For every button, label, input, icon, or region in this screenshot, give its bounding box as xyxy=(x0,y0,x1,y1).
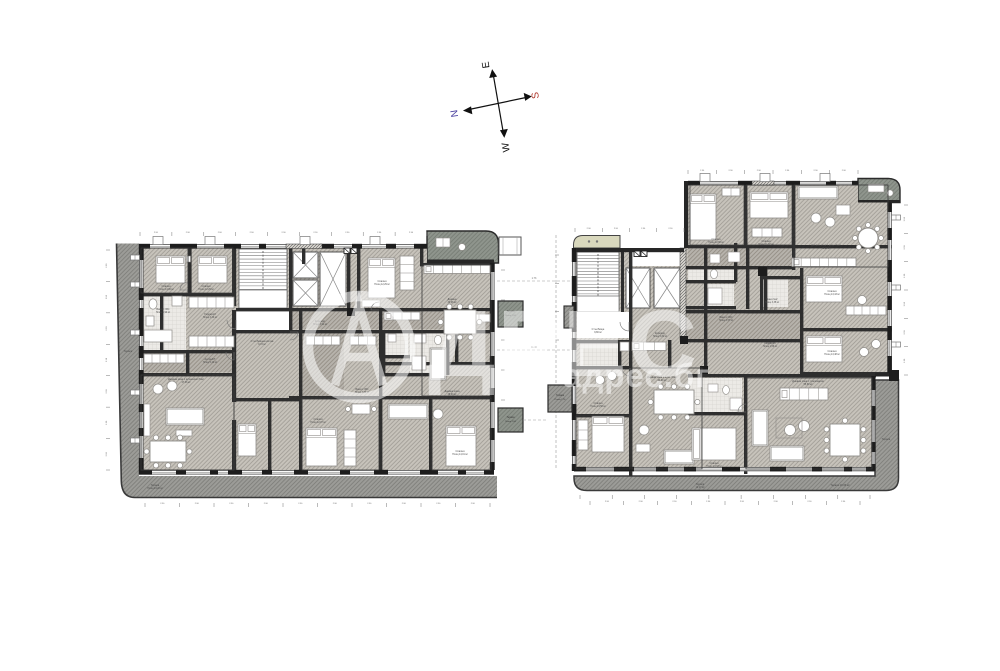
svg-text:Площ 11,07 м²: Площ 11,07 м² xyxy=(758,243,774,246)
svg-text:Площ 12,66 м²: Площ 12,66 м² xyxy=(708,241,724,244)
svg-text:Площ 13,48 м²: Площ 13,48 м² xyxy=(824,353,840,356)
svg-text:Спалня: Спалня xyxy=(161,284,171,288)
svg-text:Площ 3,35 м²: Площ 3,35 м² xyxy=(765,301,780,304)
svg-text:Площ 14,93 м²: Площ 14,93 м² xyxy=(706,465,722,468)
svg-text:Площ 14,01 м²: Площ 14,01 м² xyxy=(452,453,468,456)
svg-text:Площ 4,90 м²: Площ 4,90 м² xyxy=(156,311,171,314)
svg-text:Площ 2,94: Площ 2,94 xyxy=(505,421,517,423)
svg-text:Баня №2: Баня №2 xyxy=(767,297,778,301)
svg-text:Спалня: Спалня xyxy=(827,349,837,353)
svg-text:Гардероб: Гардероб xyxy=(204,312,216,316)
svg-text:Гардероб: Гардероб xyxy=(764,341,776,345)
svg-text:9,72 м²: 9,72 м² xyxy=(258,343,266,346)
svg-text:Спалня: Спалня xyxy=(313,417,323,421)
svg-text:Дневна зона с трапезария: Дневна зона с трапезария xyxy=(792,379,824,383)
svg-text:Площ 4,56 м²: Площ 4,56 м² xyxy=(763,345,778,348)
svg-text:адрес.бг: адрес.бг xyxy=(563,357,710,394)
svg-text:Спалня: Спалня xyxy=(455,449,465,453)
svg-text:Тераса 19,36 м²: Тераса 19,36 м² xyxy=(830,483,849,487)
svg-text:Площ 44,22 м²: Площ 44,22 м² xyxy=(147,487,163,490)
svg-text:Площ 3,43 м²: Площ 3,43 м² xyxy=(203,316,218,319)
svg-text:41,26 м²: 41,26 м² xyxy=(822,247,831,250)
svg-text:Тераса: Тераса xyxy=(151,483,160,487)
svg-text:12,17 м²: 12,17 м² xyxy=(696,486,705,489)
svg-text:Дневна зона с кухненски бокс: Дневна зона с кухненски бокс xyxy=(168,377,205,381)
svg-text:Площ 12,29 м²: Площ 12,29 м² xyxy=(198,288,214,291)
svg-text:Площ 14,06 м²: Площ 14,06 м² xyxy=(158,288,174,291)
svg-text:Площ 13,43 м²: Площ 13,43 м² xyxy=(824,293,840,296)
svg-text:Спалня: Спалня xyxy=(593,401,603,405)
svg-text:47,06 м²: 47,06 м² xyxy=(182,381,191,384)
svg-text:Спалня: Спалня xyxy=(377,279,387,283)
svg-text:Баня с WC: Баня с WC xyxy=(355,387,368,391)
svg-text:Стълбищна клетка: Стълбищна клетка xyxy=(251,339,274,343)
svg-text:Площ 7,76: Площ 7,76 xyxy=(555,399,567,401)
svg-text:Спалня: Спалня xyxy=(761,239,771,243)
svg-text:Спалня: Спалня xyxy=(201,284,211,288)
svg-text:Антре/КТ: Антре/КТ xyxy=(204,357,215,361)
svg-text:Площ 14,50 м²: Площ 14,50 м² xyxy=(590,405,606,408)
svg-text:Тераса: Тераса xyxy=(507,416,516,419)
svg-text:Дневна зона с кухн. бокс: Дневна зона с кухн. бокс xyxy=(811,243,842,247)
svg-text:1.73: 1.73 xyxy=(532,277,537,280)
svg-text:Тераса: Тераса xyxy=(882,437,891,441)
svg-text:Площ 5,43 м²: Площ 5,43 м² xyxy=(203,361,218,364)
svg-text:Спалня: Спалня xyxy=(711,237,721,241)
svg-text:Спалня: Спалня xyxy=(827,289,837,293)
svg-text:Спалня: Спалня xyxy=(709,461,719,465)
svg-text:Тераса: Тераса xyxy=(696,482,705,486)
svg-text:55,60 м²: 55,60 м² xyxy=(804,383,813,386)
svg-text:Баня с WC: Баня с WC xyxy=(156,307,169,311)
svg-text:Площ 12,29 м²: Площ 12,29 м² xyxy=(374,283,390,286)
svg-text:Площ 4,57 м²: Площ 4,57 м² xyxy=(719,319,734,322)
svg-text:Площ 12,07 м²: Площ 12,07 м² xyxy=(310,421,326,424)
svg-text:Баня с WC: Баня с WC xyxy=(719,315,732,319)
svg-text:Тераса: Тераса xyxy=(124,349,133,353)
